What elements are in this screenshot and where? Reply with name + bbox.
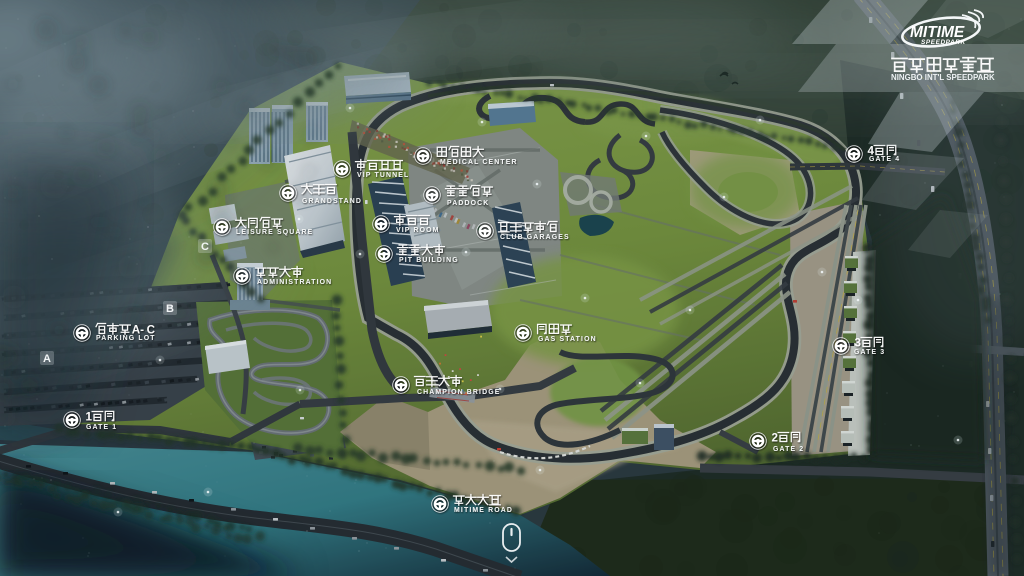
svg-text:GATE 2: GATE 2 [773,446,804,453]
svg-text:B: B [166,303,174,315]
svg-text:3: 3 [855,336,862,349]
svg-text:VIP ROOM: VIP ROOM [396,227,440,234]
svg-text:A: A [43,353,51,365]
svg-text:GATE 1: GATE 1 [86,424,117,431]
svg-text:MEDICAL CENTER: MEDICAL CENTER [440,159,518,166]
svg-text:PARKING LOT: PARKING LOT [96,335,156,342]
svg-text:CLUB GARAGES: CLUB GARAGES [500,234,570,241]
svg-text:C: C [201,241,209,253]
svg-text:2: 2 [772,431,778,444]
svg-text:GAS STATION: GAS STATION [538,336,597,343]
svg-text:PADDOCK: PADDOCK [447,200,489,207]
svg-text:ADMINISTRATION: ADMINISTRATION [257,279,332,286]
svg-text:GRANDSTAND: GRANDSTAND [302,198,362,205]
svg-text:MITIME ROAD: MITIME ROAD [454,507,513,514]
svg-text:PIT BUILDING: PIT BUILDING [399,257,459,264]
svg-text:VIP TUNNEL: VIP TUNNEL [357,172,409,179]
svg-text:NINGBO INT'L SPEEDPARK: NINGBO INT'L SPEEDPARK [891,73,995,82]
svg-text:1: 1 [86,410,93,423]
svg-text:LEISURE SQUARE: LEISURE SQUARE [236,229,313,236]
svg-text:GATE 3: GATE 3 [854,349,885,356]
svg-text:CHAMPION BRIDGE: CHAMPION BRIDGE [417,389,500,396]
svg-text:SPEEDPARK: SPEEDPARK [921,39,966,46]
